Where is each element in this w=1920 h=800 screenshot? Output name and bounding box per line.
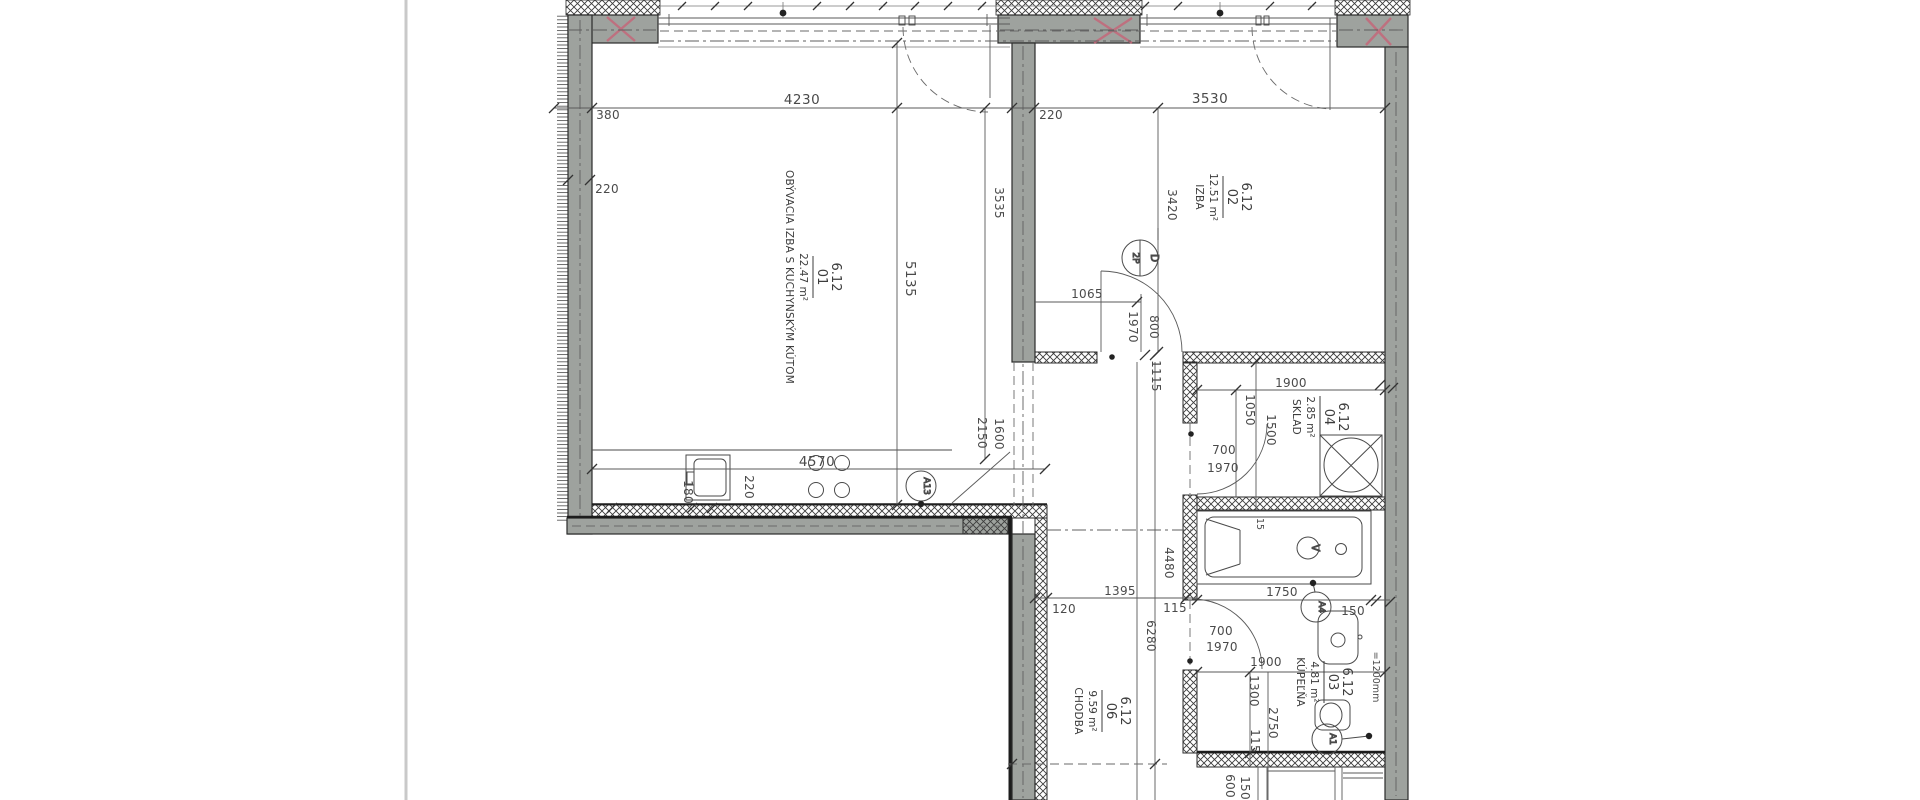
floor-plan-drawing: A13 A4 A1 V D 2P 4230 3530 380 220 [0, 0, 1920, 800]
dim-5135: 5135 [902, 261, 918, 297]
dim-4230: 4230 [784, 92, 820, 108]
marker-a4-label: A4 [1316, 601, 1326, 613]
tub-drain-icon [1336, 544, 1347, 555]
centerlines [568, 20, 1406, 798]
opening-diagonal-living-chodba [952, 452, 1010, 503]
wall-izba-south-left [1035, 352, 1097, 363]
dim-1600: 1600 [992, 418, 1006, 450]
window-izba [1140, 14, 1337, 110]
marker-v-label: V [1309, 544, 1321, 552]
marker-a4: A4 [1301, 580, 1331, 622]
room-label-sklad: 6.12 04 2.85 m² SKLAD [1290, 396, 1350, 438]
marker-v: V [1297, 537, 1347, 559]
wall-right [1385, 47, 1408, 800]
dim-4480: 4480 [1162, 547, 1176, 579]
wall-divider-living-izba [1012, 43, 1035, 362]
dim-700-bath: 700 [1209, 624, 1233, 638]
dim-1065: 1065 [1071, 287, 1103, 301]
dim-1970-sklad: 1970 [1207, 461, 1239, 475]
dim-3420: 3420 [1165, 189, 1179, 221]
dim-2750: 2750 [1266, 707, 1280, 739]
room-code: 6.12 [1117, 697, 1132, 726]
room-name: IZBA [1193, 184, 1205, 210]
room-name: KÚPEĽŇA [1294, 657, 1307, 707]
kitchen [592, 450, 952, 500]
dim-2150: 2150 [975, 417, 989, 449]
dim-15: 15 [1254, 518, 1265, 530]
dim-1200mm: =1200mm [1370, 652, 1381, 703]
dim-220-left: 220 [595, 182, 619, 196]
dim-1970-bath: 1970 [1206, 640, 1238, 654]
dim-1900-bath: 1900 [1250, 655, 1282, 669]
dim-800-izba: 800 [1147, 315, 1161, 339]
floor-plan-page: { "drawing": { "type": "apartment floor … [0, 0, 1920, 800]
shaft-symbol [1320, 435, 1382, 496]
dim-220-kitchen: 220 [742, 475, 756, 499]
room-number: 01 [814, 269, 829, 286]
room-area: 12.51 m² [1207, 173, 1219, 221]
dim-150-tub: 150 [1341, 604, 1365, 618]
marker-a13: A13 [906, 471, 936, 507]
room-code: 6.12 [1339, 668, 1354, 697]
room-number: 03 [1325, 674, 1340, 691]
room-number: 02 [1224, 189, 1239, 206]
dim-120: 120 [1052, 602, 1076, 616]
room-area: 22.47 m² [797, 253, 809, 301]
room-code: 6.12 [1238, 183, 1253, 212]
room-name: OBÝVACIA IZBA S KUCHYNSKÝM KÚTOM [783, 170, 796, 384]
wall-sklad-left-b [1183, 495, 1197, 600]
door-swing-izba [1101, 271, 1182, 352]
dim-1115: 1115 [1149, 360, 1163, 392]
marker-door-label: D [1148, 254, 1160, 262]
door-swing-sklad [1197, 424, 1267, 494]
door-swing-balcony-living [903, 27, 988, 112]
room-number: 06 [1103, 703, 1118, 720]
dim-600: 600 [1223, 774, 1237, 798]
door-swing-balcony-izba [1252, 27, 1330, 109]
wall-top-pier [998, 15, 1140, 43]
marker-door-type: D 2P [1122, 228, 1160, 276]
bathtub [1197, 511, 1371, 584]
dimension-texts-horizontal: 4230 3530 380 220 220 1065 4570 1900 700… [595, 91, 1365, 669]
dim-3530: 3530 [1192, 91, 1228, 107]
marker-door-type-label: 2P [1130, 252, 1140, 264]
dim-6280: 6280 [1144, 620, 1158, 652]
marker-a1: A1 [1312, 724, 1372, 754]
dim-150-bottom: 150 [1238, 776, 1252, 800]
dim-3535: 3535 [992, 187, 1006, 219]
dim-1050: 1050 [1243, 394, 1257, 426]
dim-700-sklad: 700 [1212, 443, 1236, 457]
dim-1970-izba: 1970 [1126, 311, 1140, 343]
dim-1300: 1300 [1247, 675, 1261, 707]
dim-220-top: 220 [1039, 108, 1063, 122]
dim-380: 380 [596, 108, 620, 122]
wall-bath-left [1183, 670, 1197, 753]
room-label-izba: 6.12 02 12.51 m² IZBA [1193, 173, 1253, 221]
marker-a1-label: A1 [1327, 733, 1337, 745]
dim-4570: 4570 [799, 454, 835, 470]
dim-1500: 1500 [1264, 414, 1278, 446]
wall-bath-bottom [1197, 753, 1385, 767]
room-area: 2.85 m² [1304, 396, 1316, 437]
dim-1900-sklad: 1900 [1275, 376, 1307, 390]
wall-corridor-left-layer [1035, 518, 1047, 800]
room-number: 04 [1321, 409, 1336, 426]
wall-sklad-bath [1197, 497, 1385, 510]
room-code: 6.12 [828, 263, 843, 292]
dim-115-bath: 115 [1248, 729, 1262, 753]
wall-top-right-block [1337, 15, 1408, 47]
wall-izba-south-right [1183, 352, 1385, 363]
room-area: 9.59 m² [1086, 690, 1098, 731]
room-name: CHODBA [1072, 687, 1084, 735]
marker-a13-label: A13 [921, 477, 931, 495]
dim-1750: 1750 [1266, 585, 1298, 599]
room-label-living: 6.12 01 22.47 m² OBÝVACIA IZBA S KUCHYNS… [783, 170, 843, 384]
dim-1395: 1395 [1104, 584, 1136, 598]
dim-115-wall: 115 [1163, 601, 1187, 615]
walls-gray [567, 15, 1408, 800]
room-area: 4.81 m² [1308, 661, 1320, 702]
room-name: SKLAD [1290, 399, 1302, 435]
room-code: 6.12 [1335, 403, 1350, 432]
room-label-chodba: 6.12 06 9.59 m² CHODBA [1072, 687, 1132, 735]
dim-180: 180 [681, 480, 695, 504]
